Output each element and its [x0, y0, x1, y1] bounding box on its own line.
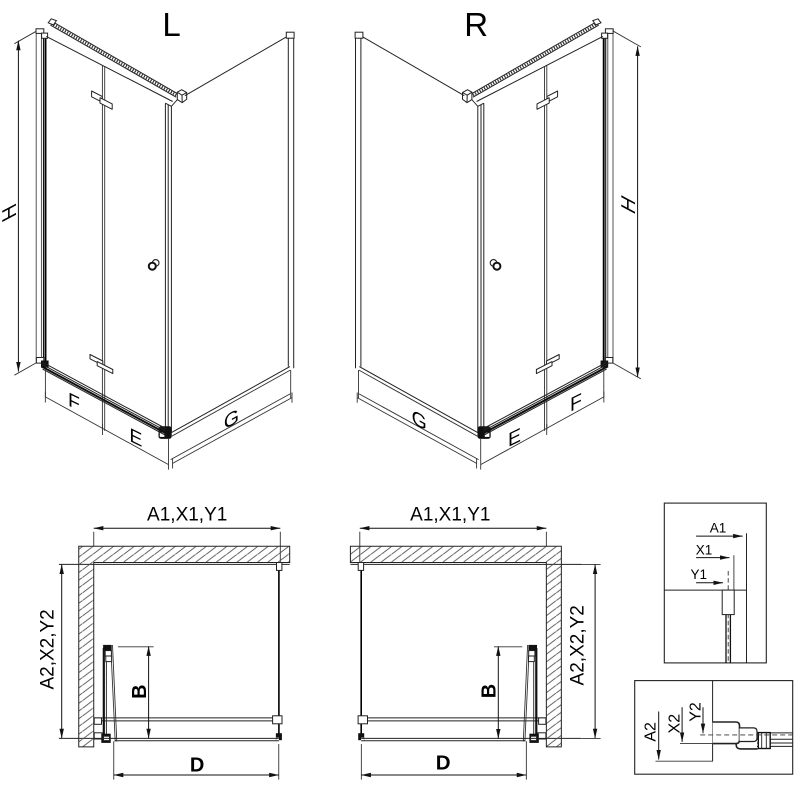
svg-text:B: B [129, 684, 151, 698]
svg-text:X1: X1 [696, 543, 713, 558]
svg-text:D: D [436, 752, 451, 775]
svg-text:X2: X2 [666, 714, 683, 734]
svg-text:A2: A2 [642, 722, 659, 742]
svg-text:A2,X2,Y2: A2,X2,Y2 [567, 605, 588, 685]
svg-text:B: B [479, 684, 501, 698]
svg-text:A2,X2,Y2: A2,X2,Y2 [38, 609, 59, 689]
svg-text:R: R [464, 6, 488, 43]
svg-text:D: D [190, 754, 204, 776]
svg-text:Y1: Y1 [691, 567, 708, 582]
svg-text:A1: A1 [710, 521, 727, 536]
svg-text:A1,X1,Y1: A1,X1,Y1 [410, 504, 490, 525]
svg-text:L: L [162, 6, 180, 43]
svg-text:A1,X1,Y1: A1,X1,Y1 [147, 504, 227, 525]
svg-text:Y2: Y2 [688, 702, 705, 722]
